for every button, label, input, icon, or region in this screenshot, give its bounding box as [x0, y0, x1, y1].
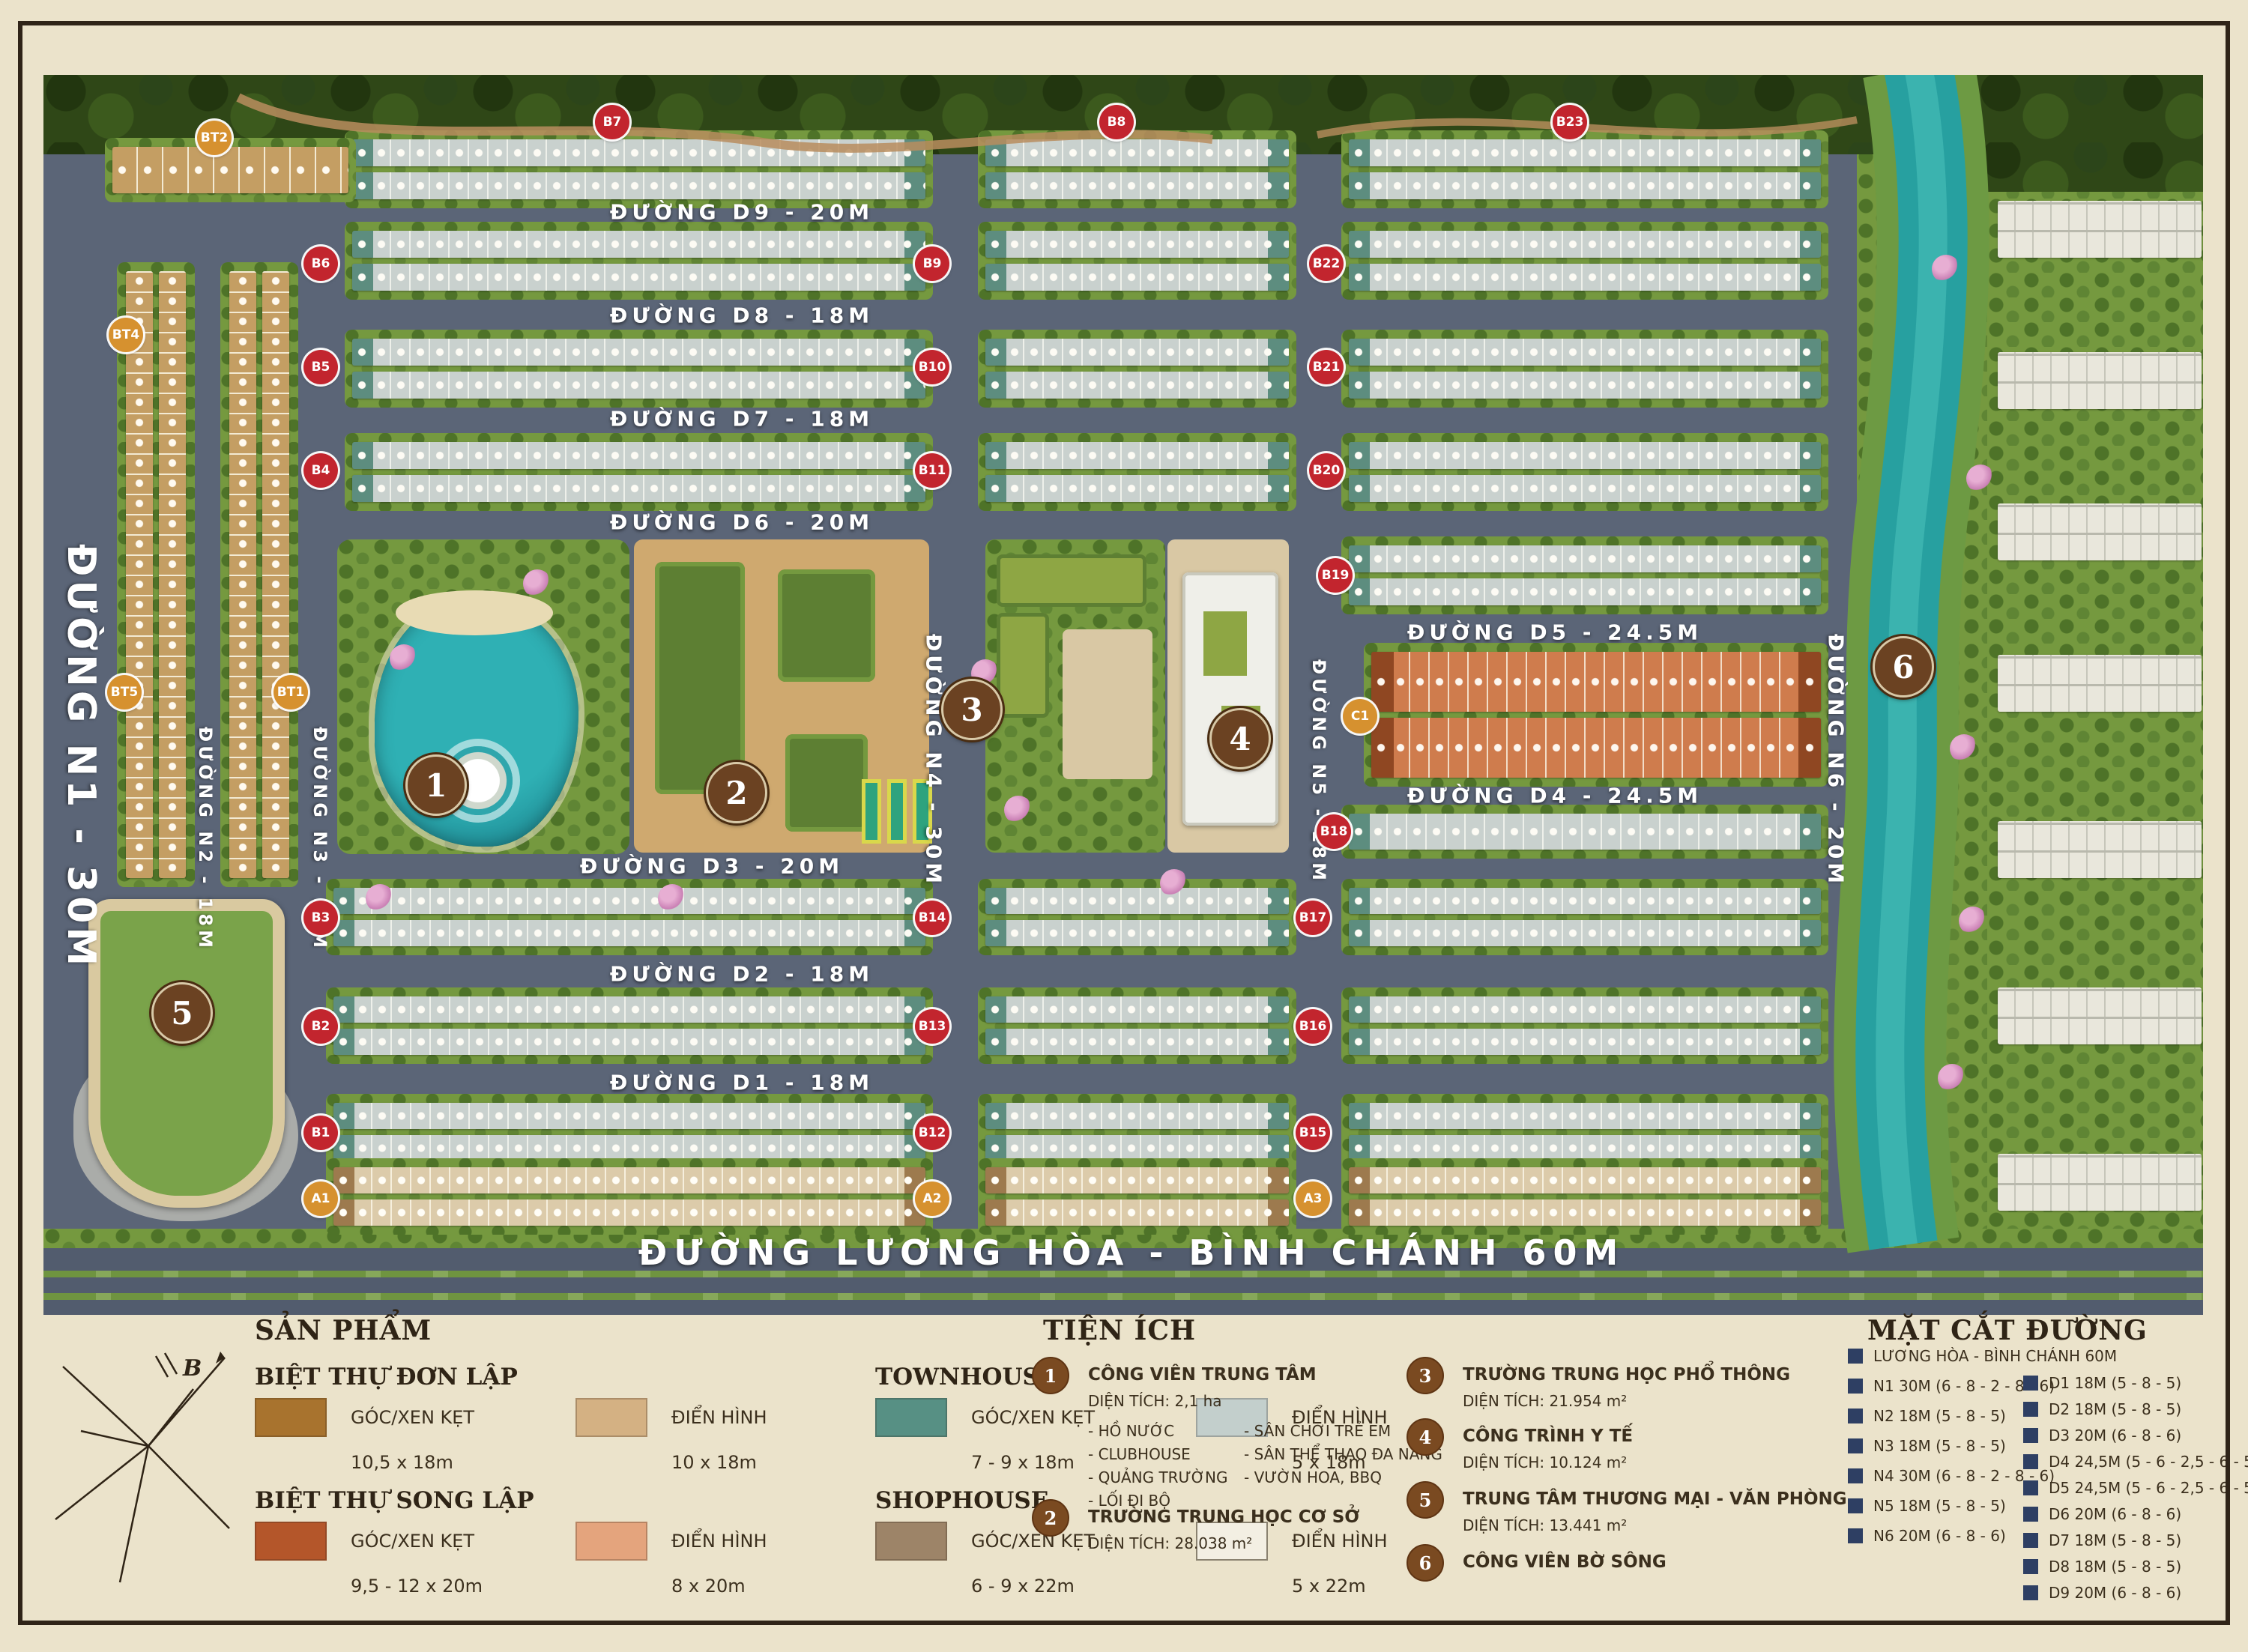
badge-a1: A1 [303, 1181, 338, 1216]
townhouse-row-b1-a [985, 996, 1289, 1023]
amenity-area: DIỆN TÍCH: 21.954 m² [1463, 1392, 1627, 1410]
amenity-detail: - QUẢNG TRƯỜNG [1088, 1468, 1227, 1486]
townhouse-row-b0-b [1349, 920, 1821, 946]
townhouse-row-t2-a [1349, 339, 1821, 366]
road-section-bullet [1848, 1379, 1863, 1394]
townhouse-row-b2-a [1349, 1103, 1821, 1129]
amenity-marker-6: 6 [1873, 636, 1934, 698]
shophouse-row-a-b [1349, 1199, 1821, 1226]
road-section-item: N3 18M (5 - 8 - 5) [1873, 1437, 2006, 1455]
amenities-title: TIỆN ÍCH [1043, 1315, 1196, 1346]
amenity-legend-number: 3 [1406, 1357, 1444, 1394]
road-section-item: D9 20M (6 - 8 - 6) [2049, 1584, 2181, 1602]
flower-tree-8 [1938, 1064, 1966, 1092]
road-section-bullet [2023, 1480, 2038, 1495]
townhouse-row-t2-b [1349, 372, 1821, 399]
badge-b22: B22 [1309, 246, 1344, 281]
amenity-area: DIỆN TÍCH: 2,1 ha [1088, 1392, 1222, 1410]
townhouse-row-t0-a [985, 139, 1289, 166]
badge-bt2: BT2 [197, 121, 232, 155]
products-title: SẢN PHẨM [255, 1315, 432, 1346]
road-label-h: ĐƯỜNG D8 - 18M [610, 303, 874, 328]
product-group-title: SHOPHOUSE [875, 1487, 1048, 1514]
road-section-item: LƯƠNG HÒA - BÌNH CHÁNH 60M [1873, 1347, 2117, 1365]
road-section-item: D5 24,5M (5 - 6 - 2,5 - 6 - 5) [2049, 1479, 2248, 1497]
townhouse-row-t2-b [352, 372, 925, 399]
shophouse-row-c1-b [1371, 718, 1821, 778]
townhouse-row-t0-a [1349, 139, 1821, 166]
masterplan-poster: ĐƯỜNG D9 - 20MĐƯỜNG D8 - 18MĐƯỜNG D7 - 1… [0, 0, 2248, 1652]
road-section-bullet [1848, 1438, 1863, 1453]
road-section-item: N2 18M (5 - 8 - 5) [1873, 1407, 2006, 1425]
product-swatch [875, 1398, 947, 1437]
boulevard-median [43, 1293, 2203, 1300]
road-section-bullet [1848, 1468, 1863, 1483]
flower-tree-0 [523, 569, 552, 598]
townhouse-row-t0-b [352, 172, 925, 199]
flower-tree-3 [1004, 796, 1033, 824]
road-label-h: ĐƯỜNG D6 - 20M [610, 510, 874, 535]
townhouse-row-t1-b [352, 264, 925, 291]
townhouse-row-b1-b [333, 1029, 925, 1055]
road-label-v: ĐƯỜNG N4 - 30M [922, 634, 946, 887]
villa-col-b-1 [229, 271, 256, 878]
townhouse-row-b2-a [985, 1103, 1289, 1129]
road-label-v: ĐƯỜNG N6 - 20M [1824, 634, 1849, 887]
badge-b14: B14 [915, 901, 949, 935]
townhouse-row-b1-a [333, 996, 925, 1023]
flower-tree-5 [1160, 869, 1188, 898]
amenity-name: TRUNG TÂM THƯƠNG MẠI - VĂN PHÒNG [1463, 1489, 1847, 1509]
badge-b23: B23 [1553, 105, 1587, 139]
compass-label: B [182, 1355, 202, 1382]
badge-a3: A3 [1296, 1181, 1330, 1216]
product-dims: 8 x 20m [671, 1576, 746, 1597]
townhouse-row-t1-a [1349, 231, 1821, 258]
badge-b9: B9 [915, 246, 949, 281]
flower-tree-4 [658, 884, 686, 913]
amenity-legend-number: 1 [1032, 1357, 1069, 1394]
product-dims: 6 - 9 x 22m [971, 1576, 1075, 1597]
townhouse-row-t3-b [1349, 475, 1821, 502]
villa-col-a-2 [159, 271, 186, 878]
townhouse-row-b1-a [1349, 996, 1821, 1023]
high-school-yard [1063, 629, 1152, 779]
townhouse-row-t2-b [985, 372, 1289, 399]
badge-b8: B8 [1099, 105, 1134, 139]
amenity-name: CÔNG TRÌNH Y TẾ [1463, 1426, 1633, 1446]
badge-b10: B10 [915, 350, 949, 384]
school-building [778, 569, 875, 682]
townhouse-row-b2-b [985, 1135, 1289, 1161]
product-swatch [575, 1522, 647, 1561]
amenity-area: DIỆN TÍCH: 10.124 m² [1463, 1453, 1627, 1471]
villa-row-topleft [112, 147, 348, 193]
product-swatch [255, 1398, 327, 1437]
townhouse-row-t0-a [352, 139, 925, 166]
product-dims: 10 x 18m [671, 1452, 757, 1473]
townhouse-row-d4 [1349, 814, 1821, 850]
badge-b20: B20 [1309, 453, 1344, 488]
townhouse-row-t3-a [352, 442, 925, 469]
product-group-title: TOWNHOUSE [875, 1364, 1057, 1391]
amenity-area: DIỆN TÍCH: 13.441 m² [1463, 1516, 1627, 1534]
product-dims: 9,5 - 12 x 20m [351, 1576, 483, 1597]
townhouse-row-t0-b [1349, 172, 1821, 199]
badge-bt4: BT4 [109, 318, 143, 352]
east-house-row-1 [1998, 352, 2202, 409]
road-section-item: D7 18M (5 - 8 - 5) [2049, 1531, 2181, 1549]
road-section-item: D1 18M (5 - 8 - 5) [2049, 1374, 2181, 1392]
badge-bt1: BT1 [274, 675, 308, 709]
site-map: ĐƯỜNG D9 - 20MĐƯỜNG D8 - 18MĐƯỜNG D7 - 1… [43, 75, 2203, 1315]
badge-b3: B3 [303, 901, 338, 935]
east-house-row-0 [1998, 201, 2202, 258]
medical-courtyard [1203, 611, 1247, 676]
townhouse-row-d5-a [1349, 545, 1821, 572]
road-section-item: D2 18M (5 - 8 - 5) [2049, 1400, 2181, 1418]
road-label-h: ĐƯỜNG D2 - 18M [610, 962, 874, 987]
townhouse-row-t1-b [985, 264, 1289, 291]
townhouse-row-b2-b [1349, 1135, 1821, 1161]
school-building [785, 734, 868, 832]
northeast-forest [1978, 75, 2203, 192]
townhouse-row-b0-a [1349, 888, 1821, 914]
amenity-legend-number: 6 [1406, 1544, 1444, 1582]
amenity-name: CÔNG VIÊN BỜ SÔNG [1463, 1552, 1667, 1572]
product-dims: 7 - 9 x 18m [971, 1452, 1075, 1473]
badge-b18: B18 [1317, 814, 1351, 849]
east-house-row-3 [1998, 655, 2202, 712]
badge-b13: B13 [915, 1009, 949, 1044]
badge-b21: B21 [1309, 350, 1344, 384]
product-swatch [575, 1398, 647, 1437]
product-dims: 10,5 x 18m [351, 1452, 453, 1473]
product-type-label: ĐIỂN HÌNH [671, 1531, 767, 1552]
road-section-bullet [2023, 1402, 2038, 1417]
sections-title: MẶT CẮT ĐƯỜNG [1867, 1315, 2148, 1346]
badge-b5: B5 [303, 350, 338, 384]
townhouse-row-t3-a [985, 442, 1289, 469]
badge-b17: B17 [1296, 901, 1330, 935]
flower-tree-1 [390, 644, 418, 673]
east-house-row-5 [1998, 987, 2202, 1044]
east-house-row-4 [1998, 821, 2202, 878]
road-section-item: N5 18M (5 - 8 - 5) [1873, 1497, 2006, 1515]
east-house-row-6 [1998, 1154, 2202, 1211]
flower-tree-9 [1966, 465, 1995, 493]
product-swatch [875, 1522, 947, 1561]
townhouse-row-t2-a [352, 339, 925, 366]
badge-c1: C1 [1343, 699, 1377, 733]
commercial-building [88, 899, 285, 1208]
high-school-building [997, 613, 1049, 718]
road-label-v: ĐƯỜNG N5 - 18M [1308, 659, 1329, 884]
product-type-label: GÓC/XEN KẸT [351, 1407, 474, 1428]
townhouse-row-t2-a [985, 339, 1289, 366]
townhouse-row-t1-b [1349, 264, 1821, 291]
amenity-marker-2: 2 [706, 762, 767, 823]
sports-court [862, 779, 881, 844]
amenity-name: TRƯỜNG TRUNG HỌC CƠ SỞ [1088, 1507, 1359, 1527]
road-section-bullet [2023, 1428, 2038, 1443]
amenity-marker-5: 5 [151, 982, 213, 1044]
badge-b19: B19 [1318, 558, 1353, 593]
amenity-marker-3: 3 [941, 679, 1003, 740]
townhouse-row-b0-b [333, 920, 925, 946]
road-section-bullet [1848, 1349, 1863, 1364]
product-group-title: BIỆT THỰ ĐƠN LẬP [255, 1364, 518, 1391]
road-label-h: ĐƯỜNG D9 - 20M [610, 200, 874, 225]
villa-col-a-1 [126, 271, 153, 878]
townhouse-row-b1-b [985, 1029, 1289, 1055]
townhouse-row-t3-b [352, 475, 925, 502]
villa-col-b-2 [262, 271, 289, 878]
main-road-label: ĐƯỜNG LƯƠNG HÒA - BÌNH CHÁNH 60M [638, 1232, 1625, 1273]
product-type-label: GÓC/XEN KẸT [351, 1531, 474, 1552]
road-label-v: ĐƯỜNG N1 - 30M [58, 544, 103, 969]
amenity-legend-number: 4 [1406, 1418, 1444, 1456]
road-label-h: ĐƯỜNG D3 - 20M [580, 854, 844, 879]
road-section-item: D6 20M (6 - 8 - 6) [2049, 1505, 2181, 1523]
badge-b1: B1 [303, 1116, 338, 1150]
flower-tree-6 [1950, 734, 1978, 763]
road-label-h: ĐƯỜNG D1 - 18M [610, 1071, 874, 1095]
road-section-bullet [2023, 1376, 2038, 1391]
product-group-title: BIỆT THỰ SONG LẬP [255, 1487, 534, 1514]
amenity-detail: - HỒ NƯỚC [1088, 1422, 1174, 1440]
townhouse-row-b1-b [1349, 1029, 1821, 1055]
shophouse-row-a-a [333, 1167, 925, 1193]
product-type-label: GÓC/XEN KẸT [971, 1407, 1095, 1428]
amenity-legend-number: 2 [1032, 1499, 1069, 1537]
badge-b7: B7 [595, 105, 629, 139]
townhouse-row-d5-b [1349, 578, 1821, 605]
townhouse-row-t1-a [352, 231, 925, 258]
shophouse-row-a-a [985, 1167, 1289, 1193]
townhouse-row-t3-a [1349, 442, 1821, 469]
badge-a2: A2 [915, 1181, 949, 1216]
badge-b16: B16 [1296, 1009, 1330, 1044]
flower-tree-11 [366, 884, 394, 913]
shophouse-row-c1-a [1371, 652, 1821, 712]
badge-b6: B6 [303, 246, 338, 281]
road-section-bullet [2023, 1454, 2038, 1469]
badge-b4: B4 [303, 453, 338, 488]
road-label-h: ĐƯỜNG D5 - 24.5M [1407, 620, 1702, 645]
product-type-label: ĐIỂN HÌNH [671, 1407, 767, 1428]
road-label-v: ĐƯỜNG N2 - 18M [195, 727, 216, 951]
townhouse-row-t3-b [985, 475, 1289, 502]
townhouse-row-b2-b [333, 1135, 925, 1161]
road-label-h: ĐƯỜNG D7 - 18M [610, 407, 874, 432]
townhouse-row-b2-a [333, 1103, 925, 1129]
amenity-marker-4: 4 [1209, 708, 1271, 769]
road-section-item: D8 18M (5 - 8 - 5) [2049, 1558, 2181, 1576]
townhouse-row-b0-b [985, 920, 1289, 946]
high-school-building [997, 554, 1146, 607]
shophouse-row-a-b [985, 1199, 1289, 1226]
townhouse-row-b0-a [985, 888, 1289, 914]
townhouse-row-t0-b [985, 172, 1289, 199]
product-dims: 5 x 22m [1292, 1576, 1366, 1597]
amenity-detail: - SÂN CHƠI TRẺ EM [1244, 1422, 1391, 1440]
product-type-label: GÓC/XEN KẸT [971, 1531, 1095, 1552]
road-section-bullet [2023, 1533, 2038, 1548]
road-section-item: N6 20M (6 - 8 - 6) [1873, 1527, 2006, 1545]
compass-icon: B [36, 1341, 246, 1596]
road-section-bullet [1848, 1528, 1863, 1543]
road-section-bullet [1848, 1498, 1863, 1513]
badge-b15: B15 [1296, 1116, 1330, 1150]
badge-b12: B12 [915, 1116, 949, 1150]
lake-beach [396, 590, 553, 635]
road-label-h: ĐƯỜNG D4 - 24.5M [1407, 784, 1702, 808]
badge-b11: B11 [915, 453, 949, 488]
amenity-area: DIỆN TÍCH: 28.038 m² [1088, 1534, 1252, 1552]
flower-tree-7 [1959, 907, 1987, 935]
shophouse-row-a-b [333, 1199, 925, 1226]
amenity-name: TRƯỜNG TRUNG HỌC PHỔ THÔNG [1463, 1365, 1790, 1385]
badge-bt5: BT5 [107, 675, 142, 709]
school-building [655, 562, 745, 794]
road-section-bullet [1848, 1409, 1863, 1423]
amenity-marker-1: 1 [405, 754, 467, 816]
amenity-detail: - VƯỜN HOA, BBQ [1244, 1468, 1382, 1486]
flower-tree-10 [1932, 255, 1960, 283]
road-section-bullet [2023, 1507, 2038, 1522]
road-section-bullet [2023, 1585, 2038, 1600]
road-section-bullet [2023, 1559, 2038, 1574]
product-type-label: ĐIỂN HÌNH [1292, 1531, 1388, 1552]
amenity-name: CÔNG VIÊN TRUNG TÂM [1088, 1365, 1317, 1385]
amenity-legend-number: 5 [1406, 1481, 1444, 1519]
road-section-item: D3 20M (6 - 8 - 6) [2049, 1426, 2181, 1444]
amenity-detail: - CLUBHOUSE [1088, 1445, 1191, 1463]
shophouse-row-a-a [1349, 1167, 1821, 1193]
east-house-row-2 [1998, 503, 2202, 560]
road-section-item: D4 24,5M (5 - 6 - 2,5 - 6 - 5) [2049, 1453, 2248, 1471]
sports-court [887, 779, 907, 844]
product-swatch [255, 1522, 327, 1561]
medical-building [1182, 572, 1278, 826]
townhouse-row-b0-a [333, 888, 925, 914]
badge-b2: B2 [303, 1009, 338, 1044]
townhouse-row-t1-a [985, 231, 1289, 258]
